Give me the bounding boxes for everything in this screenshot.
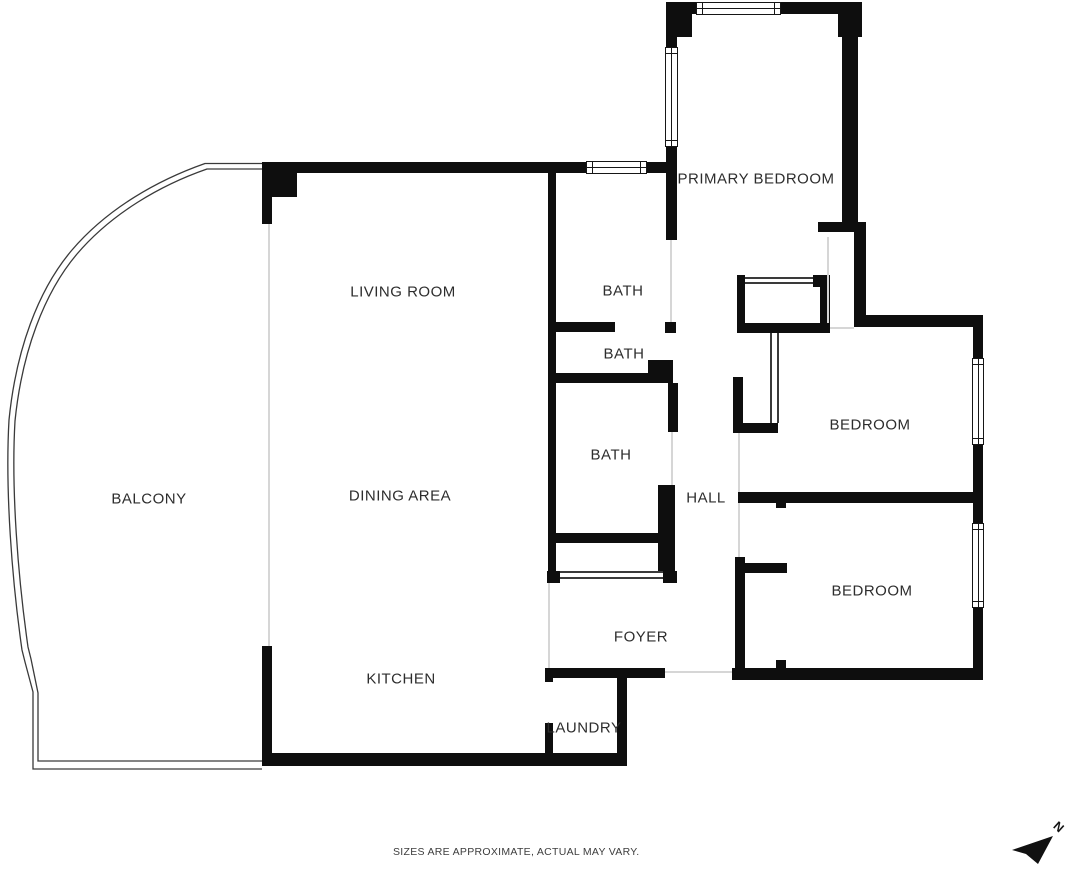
room-label-bedroom-1: BEDROOM — [829, 417, 910, 434]
wall-segment-26 — [658, 485, 675, 571]
wall-segment-0 — [262, 162, 586, 173]
room-label-dining-area: DINING AREA — [349, 488, 451, 505]
bedroom-1-window — [972, 358, 984, 445]
wall-segment-39 — [776, 660, 786, 668]
door-opening-line-4 — [738, 503, 740, 557]
door-opening-line-5 — [830, 327, 854, 329]
wall-segment-40 — [262, 646, 272, 756]
wall-segment-29 — [663, 571, 677, 583]
wall-segment-3 — [262, 162, 272, 224]
wall-segment-13 — [854, 315, 983, 327]
window-mullion — [592, 162, 593, 173]
north-arrow-icon: N — [1005, 818, 1072, 872]
wall-segment-20 — [548, 173, 556, 583]
balcony-outline — [0, 0, 1072, 872]
wall-segment-21 — [548, 322, 615, 332]
closet-door-line-3 — [777, 333, 779, 423]
room-label-bath-3: BATH — [591, 447, 632, 464]
closet-door-line-4 — [560, 571, 663, 573]
window-mullion — [702, 3, 703, 14]
window-mullion — [978, 524, 979, 607]
wall-segment-36 — [735, 557, 745, 680]
window-mullion — [973, 364, 983, 365]
window-mullion — [697, 8, 780, 9]
room-label-bath-1: BATH — [603, 283, 644, 300]
primary-bedroom-side-window — [665, 47, 678, 147]
wall-segment-17 — [973, 503, 983, 524]
room-label-laundry: LAUNDRY — [547, 720, 622, 737]
wall-segment-35 — [743, 423, 778, 433]
door-opening-line-7 — [665, 671, 732, 673]
wall-segment-27 — [555, 533, 658, 543]
balcony-outline-outer — [8, 164, 265, 770]
window-mullion — [666, 140, 677, 141]
room-label-foyer: FOYER — [614, 629, 668, 646]
wall-segment-25 — [668, 383, 678, 432]
wall-segment-12 — [854, 232, 866, 327]
door-opening-line-8 — [548, 583, 550, 668]
wall-segment-16 — [738, 492, 983, 503]
wall-segment-10 — [842, 2, 858, 222]
primary-bedroom-top-window — [696, 2, 781, 15]
wall-segment-11 — [818, 222, 866, 232]
window-mullion — [978, 359, 979, 444]
window-mullion — [671, 48, 672, 146]
disclaimer-text: SIZES ARE APPROXIMATE, ACTUAL MAY VARY. — [393, 846, 639, 858]
wall-segment-38 — [776, 500, 786, 508]
window-mullion — [587, 167, 646, 168]
wall-segment-37 — [745, 563, 787, 573]
door-opening-line-6 — [827, 237, 829, 323]
room-label-living-room: LIVING ROOM — [350, 284, 456, 301]
wall-segment-42 — [545, 668, 665, 678]
wall-segment-14 — [973, 327, 983, 359]
wall-segment-22 — [665, 322, 676, 333]
wall-segment-1 — [647, 162, 666, 173]
window-mullion — [774, 3, 775, 14]
bath-exterior-window — [586, 161, 647, 174]
wall-segment-9 — [666, 147, 677, 240]
door-opening-line-3 — [738, 433, 740, 492]
balcony-outline-inner — [14, 169, 265, 761]
wall-segment-8 — [666, 2, 677, 47]
room-label-balcony: BALCONY — [111, 491, 186, 508]
floor-plan: LIVING ROOMDINING AREAKITCHENBALCONYPRIM… — [0, 0, 1072, 872]
room-label-bath-2: BATH — [604, 346, 645, 363]
closet-door-line-2 — [770, 333, 772, 423]
window-mullion — [973, 601, 983, 602]
wall-segment-41 — [262, 753, 627, 766]
room-label-bedroom-2: BEDROOM — [831, 583, 912, 600]
wall-segment-43 — [545, 668, 553, 682]
wall-segment-23 — [556, 373, 648, 383]
bedroom-2-window — [972, 523, 984, 608]
room-label-kitchen: KITCHEN — [366, 671, 435, 688]
north-arrow-pointer — [1012, 836, 1053, 864]
closet-door-line-0 — [745, 277, 813, 279]
window-mullion — [973, 438, 983, 439]
window-mullion — [666, 53, 677, 54]
wall-segment-34 — [733, 377, 743, 433]
closet-door-line-5 — [560, 577, 663, 579]
door-opening-line-0 — [268, 224, 270, 646]
closet-door-line-1 — [745, 282, 813, 284]
window-mullion — [973, 529, 983, 530]
door-opening-line-1 — [670, 240, 672, 322]
window-mullion — [640, 162, 641, 173]
wall-segment-33 — [737, 323, 830, 333]
wall-segment-19 — [732, 668, 983, 680]
door-opening-line-2 — [671, 432, 673, 485]
room-label-primary-bedroom: PRIMARY BEDROOM — [678, 171, 835, 188]
wall-segment-24 — [648, 360, 673, 383]
room-label-hall: HALL — [686, 490, 726, 507]
wall-segment-28 — [547, 571, 560, 583]
